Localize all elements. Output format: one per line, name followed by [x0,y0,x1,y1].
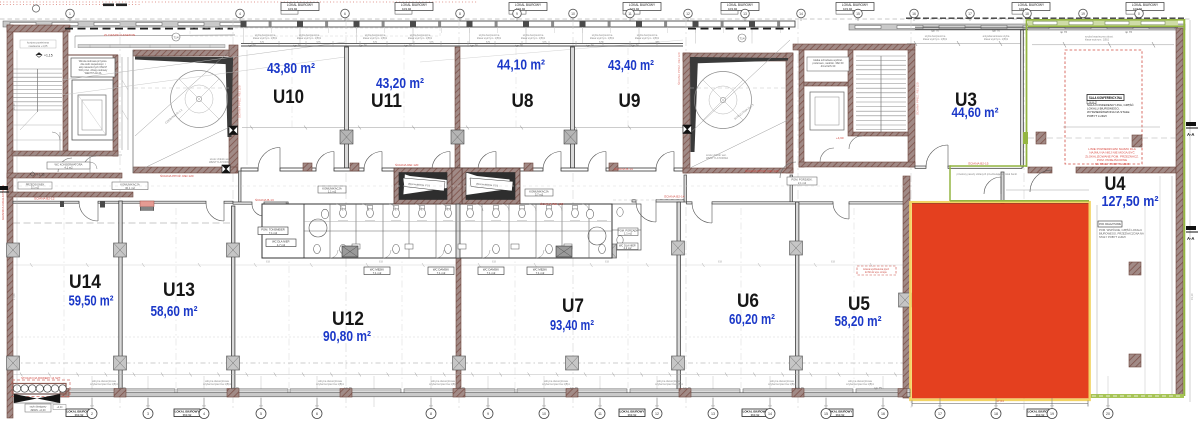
svg-text:BIUROWEGO, PRZEZNACZONA NA: BIUROWEGO, PRZEZNACZONA NA [1099,231,1144,235]
svg-text:STOJAKI NA ROWERY 14 SZT.: STOJAKI NA ROWERY 14 SZT. [21,376,61,380]
svg-text:19: 19 [1050,412,1054,416]
svg-text:1,1 m2: 1,1 m2 [328,189,337,193]
svg-text:17: 17 [938,412,942,416]
svg-text:1: 1 [69,12,71,16]
svg-text:WENTYLACJA: WENTYLACJA [85,72,102,75]
svg-text:typ 76: typ 76 [515,44,523,48]
svg-text:klasa wytrzym. 1(B)1: klasa wytrzym. 1(B)1 [590,36,615,40]
svg-text:43,80 m²: 43,80 m² [267,61,315,77]
svg-text:11: 11 [628,12,632,16]
svg-text:ŚCIANA B-13: ŚCIANA B-13 [255,197,274,202]
svg-text:10: 10 [571,12,575,16]
svg-text:4,7 m2: 4,7 m2 [277,243,286,247]
svg-text:7,1 m2: 7,1 m2 [269,231,278,235]
svg-text:103,92: 103,92 [728,7,738,11]
svg-text:typ 76: typ 76 [404,44,412,48]
svg-text:typ 75: typ 75 [796,386,804,390]
svg-text:U5: U5 [848,294,870,315]
svg-text:ZEWN. +0,00: ZEWN. +0,00 [30,409,46,412]
svg-text:typ 76: typ 76 [470,44,478,48]
svg-text:60,20 m²: 60,20 m² [729,312,775,328]
svg-text:43,40 m²: 43,40 m² [608,58,654,74]
svg-text:ŚCIANA PPOŻ. REI 120: ŚCIANA PPOŻ. REI 120 [160,173,194,178]
svg-text:drzwi EIS 30: drzwi EIS 30 [821,64,836,68]
svg-text:+1,15: +1,15 [44,54,53,58]
svg-text:13: 13 [711,412,715,416]
svg-text:9: 9 [487,412,489,416]
svg-text:NA STAŁY POBYT LUDZI: NA STAŁY POBYT LUDZI [1095,162,1130,166]
svg-text:szyba bezpieczna 1(B)1: szyba bezpieczna 1(B)1 [316,382,344,386]
svg-text:ŚCIANA B2-12: ŚCIANA B2-12 [34,196,55,201]
svg-text:+0,00: +0,00 [57,407,64,409]
svg-text:12: 12 [655,412,659,416]
svg-text:typ 75: typ 75 [874,386,882,390]
svg-text:103,92: 103,92 [402,7,412,11]
svg-text:szyba bezpieczna 1(B)1: szyba bezpieczna 1(B)1 [768,382,796,386]
svg-text:20: 20 [1106,412,1110,416]
svg-text:szyba bezpieczna 1(B)1: szyba bezpieczna 1(B)1 [203,382,231,386]
svg-text:szyba bezpieczna 1(B)1: szyba bezpieczna 1(B)1 [655,382,683,386]
svg-text:7,1 m2: 7,1 m2 [536,271,545,275]
svg-text:U12: U12 [332,309,364,330]
svg-text:klasa wytrzym. 1(B)1: klasa wytrzym. 1(B)1 [923,37,948,41]
svg-text:58,60 m²: 58,60 m² [151,304,198,320]
svg-text:19: 19 [1081,12,1085,16]
svg-text:2: 2 [91,412,93,416]
svg-text:0: 0 [1138,12,1140,16]
svg-text:U8: U8 [512,91,534,112]
svg-text:SALA KONFERENCYJNA: SALA KONFERENCYJNA [1089,96,1123,100]
svg-text:90,80 m²: 90,80 m² [323,329,371,345]
svg-text:POM. MAGAZYNOWE: POM. MAGAZYNOWE [1099,222,1121,226]
svg-text:7,1 m2: 7,1 m2 [437,271,446,275]
svg-text:typ 76: typ 76 [631,44,639,48]
svg-text:POBYT LUDZI: POBYT LUDZI [1087,114,1107,118]
svg-text:818: 818 [718,261,723,264]
svg-text:klasa wytrzym. 1(B)1: klasa wytrzym. 1(B)1 [1085,38,1110,42]
svg-text:818: 818 [831,261,836,264]
svg-text:3,7 m2: 3,7 m2 [535,192,544,196]
svg-text:18: 18 [994,412,998,416]
svg-text:U13: U13 [163,280,195,301]
svg-text:typ 76: typ 76 [359,44,367,48]
svg-text:szyba bezpieczna 1(B)1: szyba bezpieczna 1(B)1 [542,382,570,386]
svg-text:U4: U4 [1105,174,1126,195]
svg-text:WENTYLATORNIA: WENTYLATORNIA [706,156,728,160]
svg-text:363,92: 363,92 [75,413,84,417]
svg-text:ŚCIANA REI 120: ŚCIANA REI 120 [540,201,564,206]
svg-text:363,92: 363,92 [183,413,192,417]
svg-text:np 76: np 76 [1060,30,1067,34]
svg-text:ŚCIANA B2-15: ŚCIANA B2-15 [968,161,989,166]
svg-text:klasa wytrzym. 1(B)1: klasa wytrzym. 1(B)1 [363,36,388,40]
svg-text:typ 76: typ 76 [248,44,256,48]
svg-text:93,40 m²: 93,40 m² [550,318,594,334]
svg-text:3: 3 [147,412,149,416]
svg-text:10: 10 [542,412,546,416]
svg-text:8: 8 [430,412,432,416]
svg-text:klasa wytrzym. 1(B)1: klasa wytrzym. 1(B)1 [408,36,433,40]
svg-text:4,2 m2: 4,2 m2 [624,246,632,250]
svg-text:103,92: 103,92 [288,7,298,11]
svg-text:U9: U9 [619,91,641,112]
svg-text:16: 16 [912,12,916,16]
svg-text:818: 818 [266,261,271,264]
svg-text:11: 11 [598,412,602,416]
svg-text:U10: U10 [273,87,304,108]
svg-text:13: 13 [743,12,747,16]
svg-text:15: 15 [824,412,828,416]
svg-text:15: 15 [856,12,860,16]
svg-text:szyba bezpieczna 1(B)1: szyba bezpieczna 1(B)1 [429,382,457,386]
svg-text:7,1 m2: 7,1 m2 [373,271,382,275]
svg-text:typ 75: typ 75 [118,386,126,390]
svg-text:typ 75: typ 75 [231,386,239,390]
svg-text:U6: U6 [737,291,759,312]
svg-text:127,50 m²: 127,50 m² [1102,194,1159,210]
svg-text:6: 6 [344,12,346,16]
svg-text:18: 18 [1025,12,1029,16]
svg-text:714: 714 [739,37,744,41]
svg-text:12: 12 [686,12,690,16]
svg-text:A-A: A-A [1187,132,1194,137]
svg-text:U7: U7 [562,296,584,317]
svg-text:klasa wytrzym. 1(B)1: klasa wytrzym. 1(B)1 [253,36,278,40]
svg-text:przesłony pasaży szklanych prz: przesłony pasaży szklanych przedzielając… [957,173,1018,176]
svg-text:typ 75: typ 75 [457,386,465,390]
svg-text:ŚCIANA B-14: ŚCIANA B-14 [614,166,633,171]
svg-text:U14: U14 [69,272,101,293]
svg-text:klasa wytrzym. 1(B)1: klasa wytrzym. 1(B)1 [477,36,502,40]
svg-text:16: 16 [881,412,885,416]
svg-text:4: 4 [203,412,205,416]
svg-text:58,20 m²: 58,20 m² [835,314,882,330]
svg-text:17,64: 17,64 [996,399,1004,403]
svg-text:818: 818 [492,261,497,264]
svg-text:typ 76: typ 76 [586,44,594,48]
svg-text:2,1 m2: 2,1 m2 [798,181,807,185]
svg-text:typ 76: typ 76 [293,44,301,48]
svg-text:14: 14 [768,412,772,416]
svg-text:30,1 m2: 30,1 m2 [125,186,135,190]
svg-text:818: 818 [605,261,610,264]
svg-text:7,1 m2: 7,1 m2 [487,271,496,275]
svg-text:4,1 m2: 4,1 m2 [64,165,73,169]
svg-text:ŚCIANA PPOŻ. REI 120: ŚCIANA PPOŻ. REI 120 [745,168,779,173]
svg-text:4: 4 [239,12,241,16]
svg-text:STAŁY POBYT LUDZI: STAŁY POBYT LUDZI [1099,235,1126,239]
svg-text:363,92: 363,92 [836,413,845,417]
svg-text:szyba bezpieczna 1(B)1: szyba bezpieczna 1(B)1 [846,382,874,386]
svg-text:17: 17 [968,12,972,16]
svg-text:ŚCIANA B2-14: ŚCIANA B2-14 [664,194,685,199]
svg-text:U11: U11 [371,91,402,112]
svg-text:714: 714 [173,36,178,40]
svg-text:44,60 m²: 44,60 m² [952,104,999,120]
svg-text:klasa wytrzym. 1(B)1: klasa wytrzym. 1(B)1 [521,36,546,40]
svg-text:59,50 m²: 59,50 m² [69,294,114,310]
svg-text:19,10: 19,10 [1190,293,1194,300]
svg-text:klasa wytrzym. 1(B)1: klasa wytrzym. 1(B)1 [297,36,322,40]
svg-text:9: 9 [516,12,518,16]
svg-text:A-A: A-A [1187,236,1194,241]
svg-text:+1,15: +1,15 [37,173,45,177]
svg-text:typ 76: typ 76 [992,29,1000,33]
svg-text:1,1 m2: 1,1 m2 [624,232,632,236]
svg-text:WENTYLATORNIA: WENTYLATORNIA [209,160,231,164]
svg-text:typ 76: typ 76 [931,29,939,33]
svg-text:+4,60: +4,60 [836,136,844,140]
svg-text:43,20 m²: 43,20 m² [376,76,424,92]
svg-text:14: 14 [799,12,803,16]
svg-text:44,10 m²: 44,10 m² [497,58,545,74]
svg-text:typ 75: typ 75 [344,386,352,390]
svg-text:103,92: 103,92 [843,7,853,11]
svg-text:363,92: 363,92 [628,413,637,417]
svg-text:ZL DASZKI KASETON: ZL DASZKI KASETON [104,33,135,37]
svg-text:ŚCIANA PPOŻ. REI 120: ŚCIANA PPOŻ. REI 120 [676,52,681,85]
svg-text:ŚCIANA REI 120: ŚCIANA REI 120 [395,162,419,167]
svg-text:6: 6 [316,412,318,416]
svg-text:363,92: 363,92 [1036,413,1045,417]
svg-text:typ 75: typ 75 [683,386,691,390]
svg-text:klasa wytrzym. 1(B)1: klasa wytrzym. 1(B)1 [984,37,1009,41]
svg-text:nawiewna +1,05: nawiewna +1,05 [29,44,48,48]
svg-text:np 76: np 76 [1125,30,1132,34]
svg-text:5: 5 [260,412,262,416]
svg-text:klasa wytrzym. 1(B)1: klasa wytrzym. 1(B)1 [635,36,660,40]
svg-text:8: 8 [459,12,461,16]
svg-text:EI 60 do wys. stropu: EI 60 do wys. stropu [865,271,887,274]
svg-text:363,92: 363,92 [751,413,760,417]
svg-text:ŚCIANA PPOŻ. REI 120: ŚCIANA PPOŻ. REI 120 [237,85,242,118]
svg-text:818: 818 [379,261,384,264]
svg-text:szyba bezpieczna 1(B)1: szyba bezpieczna 1(B)1 [90,382,118,386]
svg-text:typ 75: typ 75 [570,386,578,390]
